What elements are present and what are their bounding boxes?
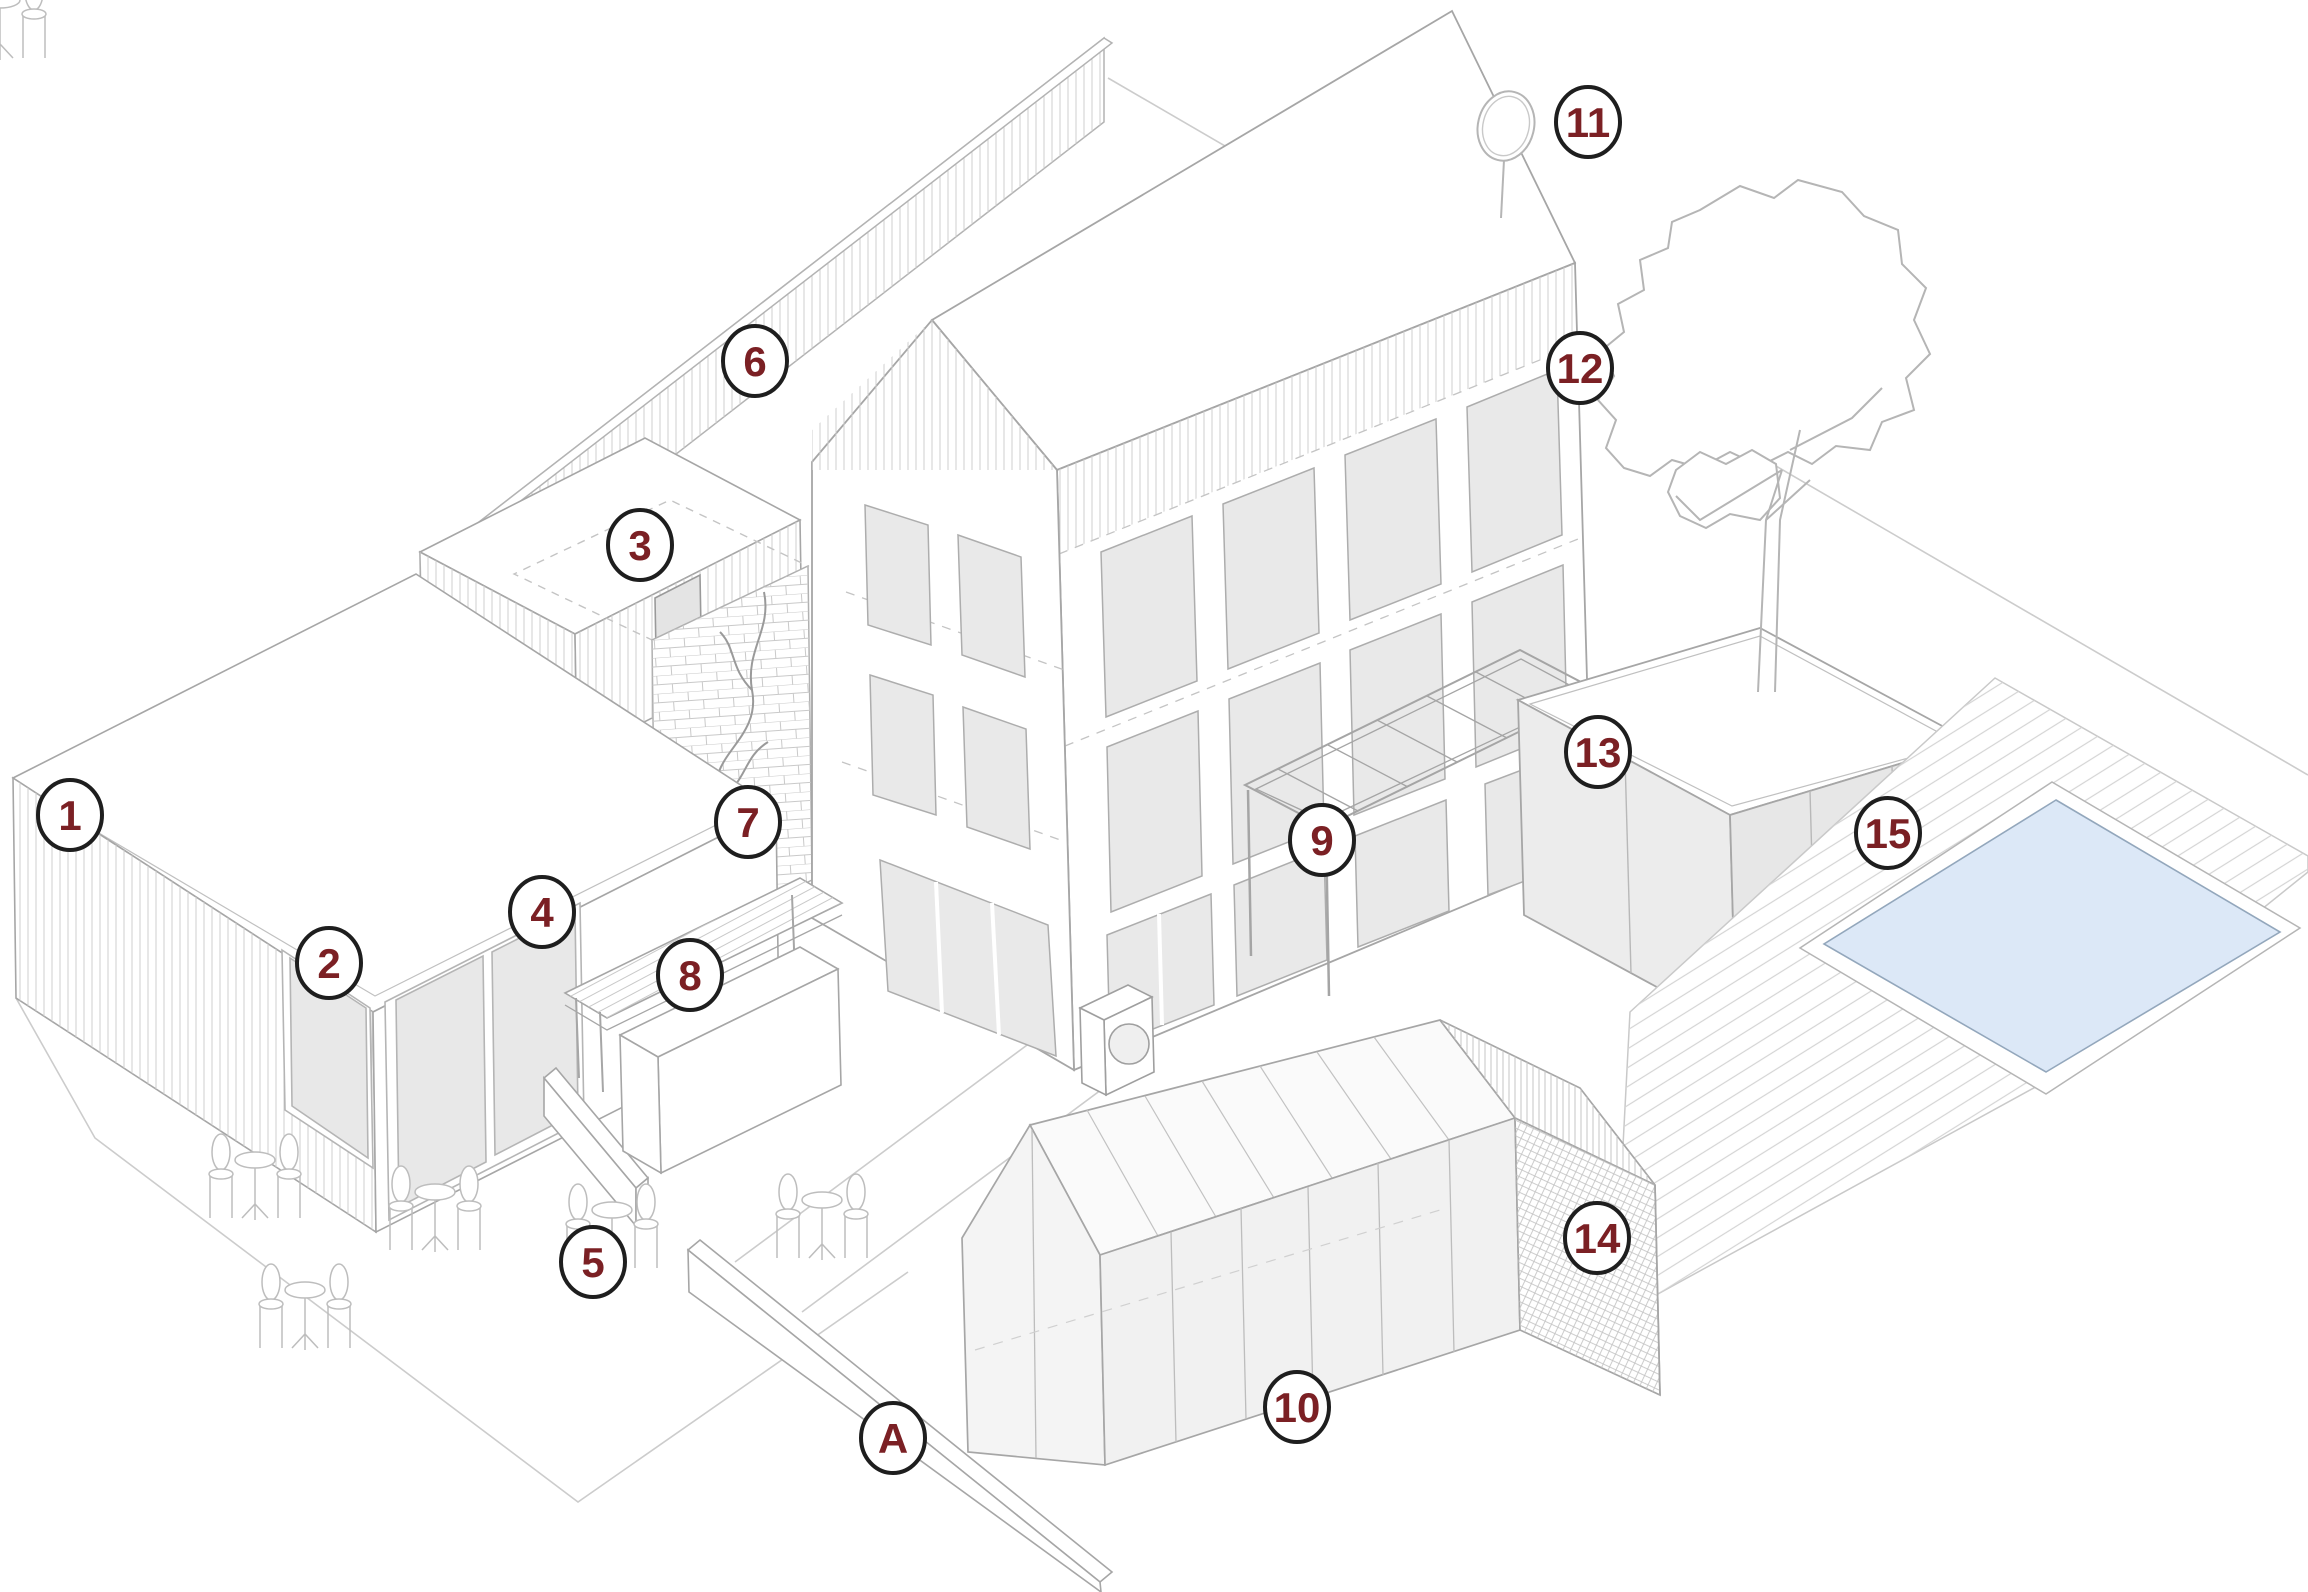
marker-1[interactable]: 1 — [38, 780, 102, 850]
marker-12[interactable]: 12 — [1548, 333, 1612, 403]
marker-9[interactable]: 9 — [1290, 805, 1354, 875]
site-plan-drawing: 123456789101112131415A — [0, 0, 2308, 1592]
greenhouse — [962, 1020, 1520, 1465]
marker-2[interactable]: 2 — [297, 928, 361, 998]
marker-label: 6 — [743, 338, 766, 385]
marker-label: 7 — [736, 799, 759, 846]
marker-7[interactable]: 7 — [716, 787, 780, 857]
marker-A[interactable]: A — [861, 1403, 925, 1473]
marker-label: 8 — [678, 952, 701, 999]
marker-3[interactable]: 3 — [608, 510, 672, 580]
heat-pump-fan-icon — [1109, 1024, 1149, 1064]
marker-5[interactable]: 5 — [561, 1227, 625, 1297]
marker-10[interactable]: 10 — [1265, 1372, 1329, 1442]
marker-label: 1 — [58, 792, 81, 839]
marker-6[interactable]: 6 — [723, 326, 787, 396]
marker-8[interactable]: 8 — [658, 940, 722, 1010]
marker-13[interactable]: 13 — [1566, 717, 1630, 787]
bistro-set — [776, 1174, 868, 1260]
marker-label: 9 — [1310, 817, 1333, 864]
marker-label: 13 — [1575, 729, 1622, 776]
bistro-set — [259, 1264, 351, 1350]
marker-label: 12 — [1557, 345, 1604, 392]
marker-14[interactable]: 14 — [1565, 1203, 1629, 1273]
tree-canopy — [1598, 180, 1930, 476]
garden-tree — [1598, 180, 1930, 692]
marker-label: 5 — [581, 1239, 604, 1286]
marker-label: 11 — [1566, 99, 1610, 146]
marker-label: 15 — [1865, 810, 1912, 857]
marker-4[interactable]: 4 — [510, 877, 574, 947]
marker-label: 4 — [530, 889, 554, 936]
marker-label: A — [878, 1415, 908, 1462]
marker-11[interactable]: 11 — [1556, 87, 1620, 157]
marker-label: 3 — [628, 522, 651, 569]
main-house — [812, 11, 1592, 1070]
site-plan-canvas: 123456789101112131415A — [0, 0, 2308, 1592]
marker-label: 2 — [317, 940, 340, 987]
marker-label: 14 — [1574, 1215, 1621, 1262]
marker-15[interactable]: 15 — [1856, 798, 1920, 868]
marker-label: 10 — [1274, 1384, 1321, 1431]
